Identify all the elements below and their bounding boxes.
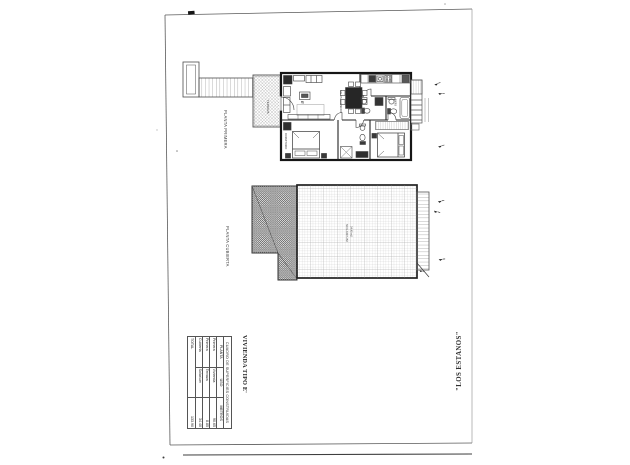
table-row: Cubierta Solarium 34.40 xyxy=(196,337,203,429)
col-header-planta: PLANTA xyxy=(217,337,224,368)
plan-drawing: TERRAZA SALON-COMEDOR BAÑO DORMITORIO E'… xyxy=(0,0,630,465)
cell-metros: 90.65 xyxy=(210,398,217,429)
table-row: Primera Vivienda 90.65 xyxy=(210,337,217,429)
surfaces-table: CUADRO DE SUPERFICIES CONSTRUIDAS PLANTA… xyxy=(187,336,232,429)
table-header-row: PLANTA USO METROS xyxy=(217,337,224,429)
tv-unit-icon xyxy=(284,76,293,85)
table-total-row: TOTAL 133.90 xyxy=(188,337,196,429)
roof-plan-cubierta: SOLARIUM 34.40 m2 xyxy=(252,185,429,280)
entry-stairs-drawing xyxy=(183,62,253,97)
table-row: Primera Terraza 8.85 xyxy=(203,337,210,429)
cell-planta: Cubierta xyxy=(196,337,203,368)
cell-metros: 34.40 xyxy=(196,398,203,429)
entrance-door-label: E' xyxy=(300,101,304,104)
bano-label: BAÑO xyxy=(394,99,397,106)
vivienda-tipo-title: VIVIENDA TIPO E' xyxy=(241,335,248,393)
planta-cubierta-label: PLANTA CUBIERTA xyxy=(225,226,230,267)
col-header-metros: METROS xyxy=(217,398,224,429)
cell-uso: Terraza xyxy=(203,367,210,398)
cell-uso: Vivienda xyxy=(210,367,217,398)
surfaces-table-wrap: CUADRO DE SUPERFICIES CONSTRUIDAS PLANTA… xyxy=(188,336,232,429)
total-label-cell: TOTAL xyxy=(188,337,196,398)
solarium-area-label: 34.40 m2 xyxy=(350,226,354,237)
scanned-plan-sheet: TERRAZA SALON-COMEDOR BAÑO DORMITORIO E'… xyxy=(0,0,630,465)
solarium-label: SOLARIUM xyxy=(345,224,349,242)
project-name-label: "LOS ESTANOS" xyxy=(456,331,463,391)
side-porch-drawing xyxy=(411,80,429,130)
surfaces-table-title: CUADRO DE SUPERFICIES CONSTRUIDAS xyxy=(224,337,232,429)
total-value-cell: 133.90 xyxy=(188,398,196,429)
wardrobe-icon xyxy=(376,122,409,130)
floor-plan-primera: TERRAZA SALON-COMEDOR BAÑO DORMITORIO E' xyxy=(183,62,429,160)
table-title-row: CUADRO DE SUPERFICIES CONSTRUIDAS xyxy=(224,337,232,429)
dormitorio-label: DORMITORIO xyxy=(284,133,287,149)
planta-primera-label: PLANTA PRIMERA xyxy=(223,110,228,149)
salon-label: SALON-COMEDOR xyxy=(339,90,343,113)
wardrobe-icon xyxy=(284,123,292,131)
roof-hatch-region xyxy=(252,186,297,280)
cell-uso: Solarium xyxy=(196,367,203,398)
cell-planta: Primera xyxy=(203,337,210,368)
solarium-region xyxy=(297,185,417,278)
col-header-uso: USO xyxy=(217,367,224,398)
house-outline xyxy=(281,73,411,160)
fridge-icon xyxy=(402,75,409,83)
cell-metros: 8.85 xyxy=(203,398,210,429)
dining-table-icon xyxy=(346,88,363,109)
roof-stairs-drawing xyxy=(417,192,429,277)
oven-icon xyxy=(369,76,376,83)
cell-planta: Primera xyxy=(210,337,217,368)
terraza-label: TERRAZA xyxy=(266,100,270,114)
registration-tick xyxy=(188,11,195,15)
